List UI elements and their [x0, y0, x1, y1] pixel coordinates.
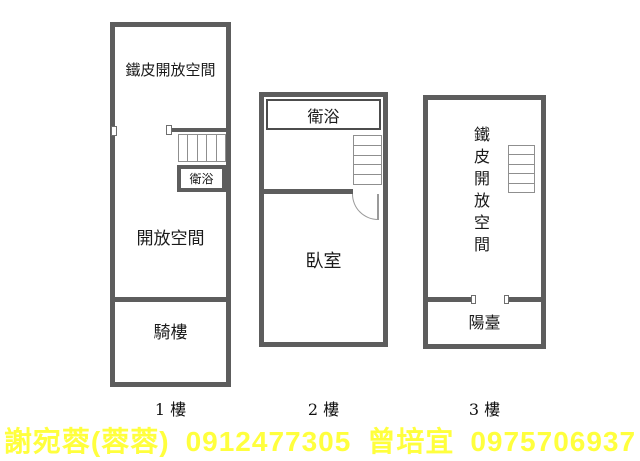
floor1-bathroom-label: 衛浴: [189, 170, 213, 187]
agent1-name: 謝宛蓉(蓉蓉): [4, 420, 170, 460]
door-marker-icon: [504, 295, 509, 304]
interior-wall: [115, 297, 226, 302]
floor1-open-space-label: 開放空間: [115, 230, 226, 250]
floor3-balcony-label: 陽臺: [428, 314, 541, 332]
floor1-caption: 1 樓: [110, 396, 231, 420]
floor1-bathroom: 衛浴: [177, 165, 226, 192]
floor2-bathroom-label: 衛浴: [307, 103, 339, 127]
agent1-phone: 0912477305: [186, 426, 352, 458]
floor-plan-1: 鐵皮開放空間 衛浴 開放空間 騎樓: [110, 22, 231, 387]
contact-strip: 謝宛蓉(蓉蓉) 0912477305 曾培宜 0975706937: [0, 420, 640, 460]
floor-plan-image: 鐵皮開放空間 衛浴 開放空間 騎樓 衛浴 臥室 鐵皮開放空間: [0, 0, 640, 461]
floor2-caption: 2 樓: [259, 396, 388, 420]
door-marker-icon: [471, 295, 476, 304]
staircase-icon: [508, 145, 535, 193]
floor-plan-2: 衛浴 臥室: [259, 92, 388, 347]
floor2-bathroom: 衛浴: [266, 99, 381, 130]
floor3-metal-open-space-label: 鐵皮開放空間: [472, 126, 488, 276]
door-marker-icon: [111, 126, 117, 136]
interior-wall: [172, 128, 226, 132]
interior-wall: [264, 189, 353, 194]
agent2-name: 曾培宜: [367, 420, 454, 460]
floor-plan-3: 鐵皮開放空間 陽臺: [423, 95, 546, 349]
floor3-caption: 3 樓: [423, 396, 546, 420]
floor1-metal-open-space-label: 鐵皮開放空間: [115, 62, 226, 79]
door-swing-icon: [352, 194, 378, 220]
floor1-arcade-label: 騎樓: [115, 324, 226, 344]
staircase-icon: [178, 134, 226, 162]
interior-wall: [509, 297, 541, 302]
floor2-bedroom-label: 臥室: [264, 252, 383, 273]
staircase-icon: [353, 135, 382, 185]
interior-wall: [428, 297, 471, 302]
agent2-phone: 0975706937: [470, 426, 636, 458]
